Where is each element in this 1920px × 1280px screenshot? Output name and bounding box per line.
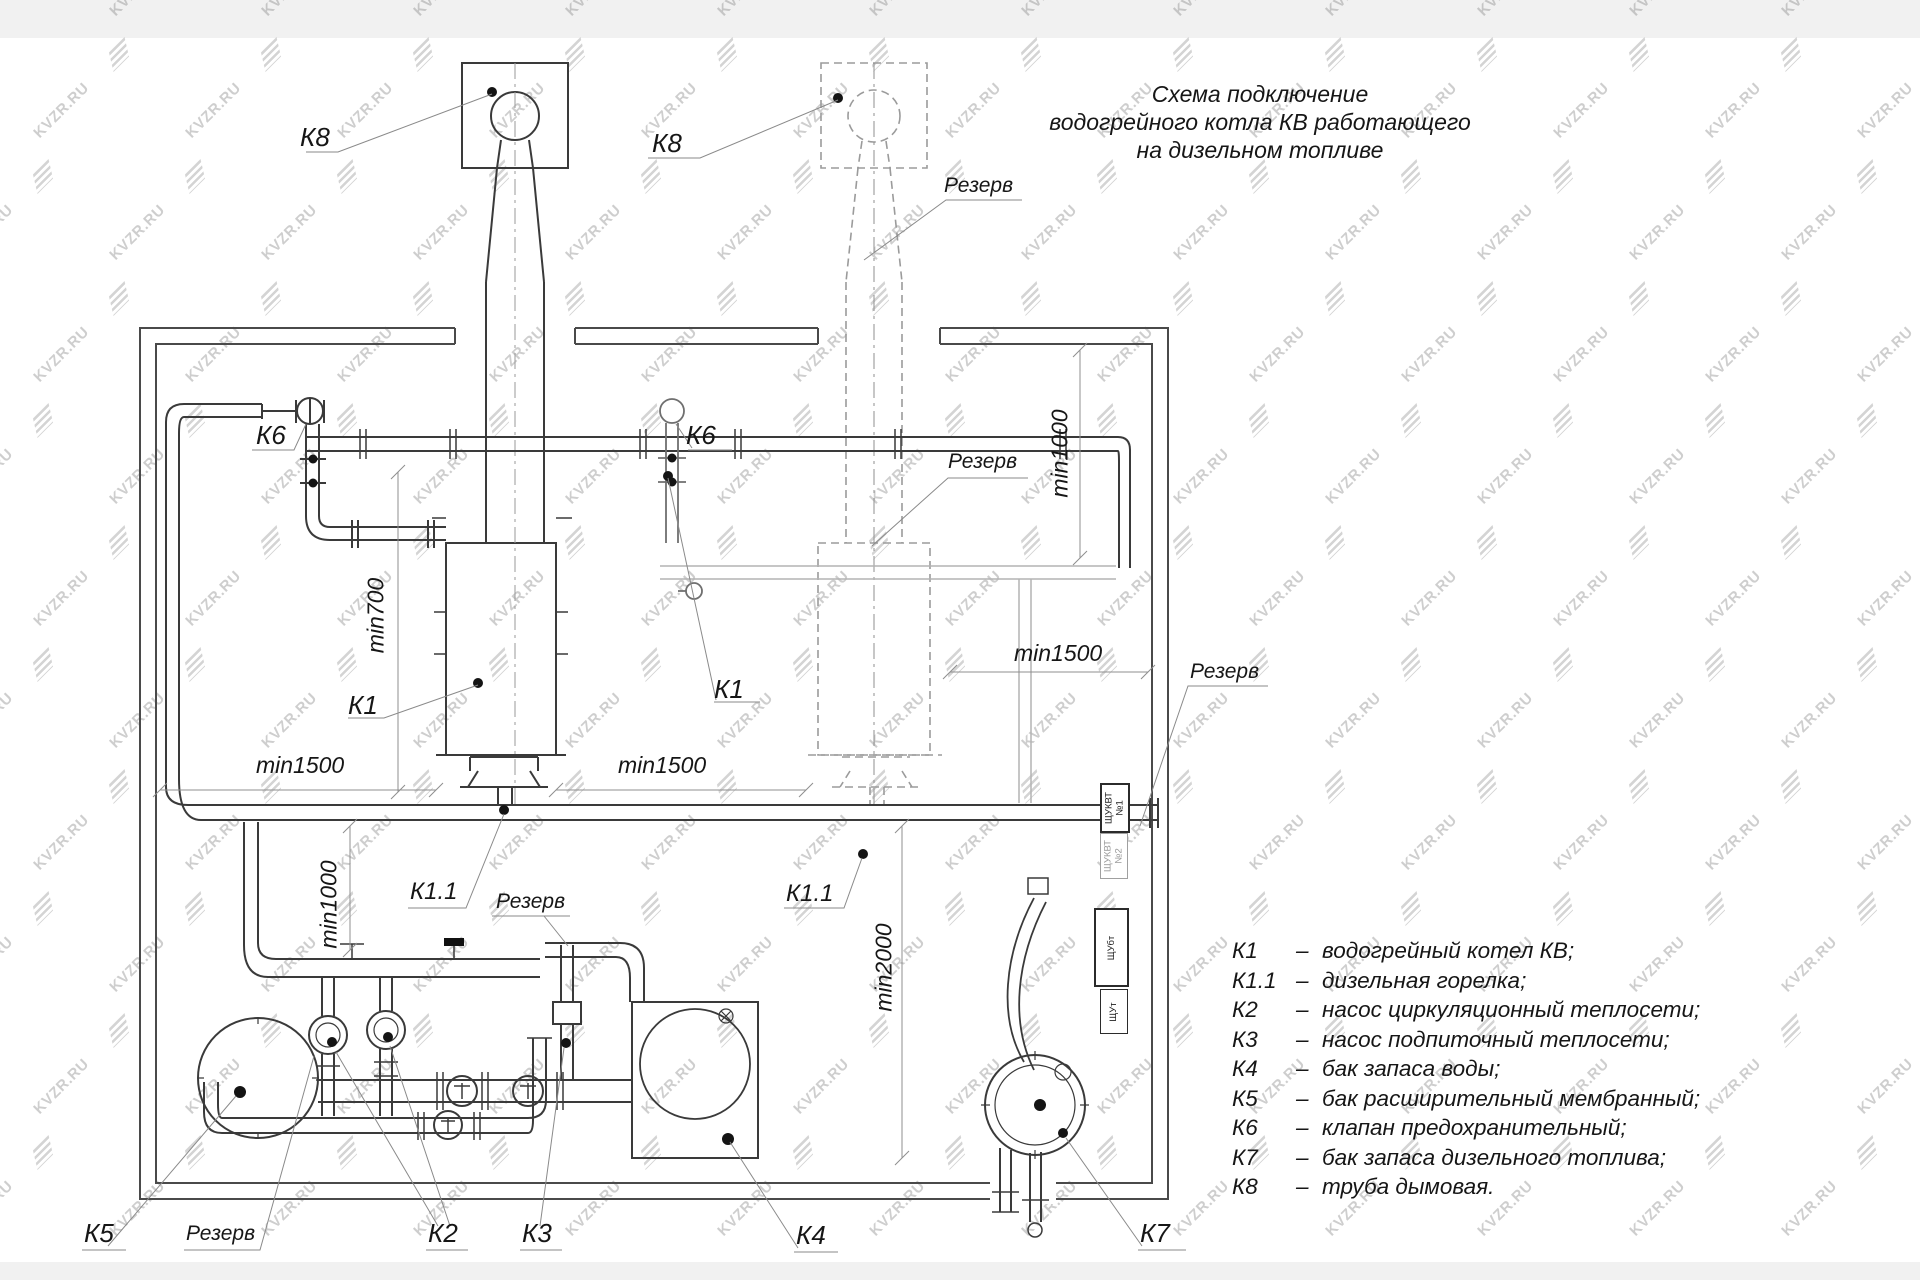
panel-shchut: ЩУт: [1100, 989, 1128, 1034]
dim-min1000-top: min1000: [1047, 394, 1074, 514]
legend-dash: –: [1296, 938, 1322, 964]
legend-dash: –: [1296, 1086, 1322, 1112]
label-k8-left: К8: [300, 122, 330, 153]
legend-row: К1–водогрейный котел КВ;: [1232, 938, 1700, 968]
legend-desc: бак запаса дизельного топлива;: [1322, 1145, 1666, 1171]
legend-code: К6: [1232, 1115, 1296, 1141]
legend-desc: труба дымовая.: [1322, 1174, 1494, 1200]
panel-shchukvt-1: ЩУКВТ №1: [1100, 783, 1130, 833]
title-line-1: Схема подключение: [1040, 80, 1480, 108]
legend-dash: –: [1296, 1056, 1322, 1082]
label-rezerv-chimney: Резерв: [944, 174, 1013, 198]
legend-code: К7: [1232, 1145, 1296, 1171]
legend-desc: водогрейный котел КВ;: [1322, 938, 1574, 964]
legend-desc: насос подпиточный теплосети;: [1322, 1027, 1670, 1053]
panel-shchubt-name: ЩУбт: [1105, 935, 1116, 960]
lower-pipe-network: [204, 943, 644, 1140]
legend-code: К8: [1232, 1174, 1296, 1200]
leader-lines: [82, 94, 1268, 1252]
label-rezerv-burner: Резерв: [496, 890, 565, 914]
label-k2: К2: [428, 1218, 458, 1249]
legend: К1–водогрейный котел КВ;К1.1–дизельная г…: [1232, 938, 1700, 1204]
panel-shchukvt-2: ЩУКВТ №2: [1100, 833, 1128, 879]
label-k8-right: К8: [652, 128, 682, 159]
title-line-3: на дизельном топливе: [1040, 136, 1480, 164]
legend-code: К2: [1232, 997, 1296, 1023]
label-k7: К7: [1140, 1218, 1170, 1249]
label-k6-right: К6: [686, 420, 716, 451]
panel-shchubt: ЩУбт: [1094, 908, 1129, 987]
dim-min1000-bottom: min1000: [316, 845, 343, 965]
label-rezerv-right: Резерв: [1190, 660, 1259, 684]
panel-shchut-name: ЩУт: [1108, 1002, 1119, 1021]
dim-min2000: min2000: [871, 908, 898, 1028]
legend-desc: бак расширительный мембранный;: [1322, 1086, 1700, 1112]
legend-dash: –: [1296, 1174, 1322, 1200]
legend-row: К6–клапан предохранительный;: [1232, 1115, 1700, 1145]
label-k4: К4: [796, 1220, 826, 1251]
dim-min1500-right: min1500: [1014, 640, 1134, 667]
legend-code: К1.1: [1232, 968, 1296, 994]
legend-code: К4: [1232, 1056, 1296, 1082]
legend-row: К1.1–дизельная горелка;: [1232, 968, 1700, 998]
dim-min1500-left: min1500: [256, 752, 376, 779]
label-k3: К3: [522, 1218, 552, 1249]
legend-dash: –: [1296, 1027, 1322, 1053]
valve-handle: [444, 938, 464, 946]
legend-desc: дизельная горелка;: [1322, 968, 1526, 994]
dim-min700: min700: [363, 556, 390, 676]
main-supply-pipe: [244, 798, 1158, 977]
legend-code: К5: [1232, 1086, 1296, 1112]
label-k11-left: К1.1: [410, 878, 458, 906]
dim-min1500-center: min1500: [618, 752, 738, 779]
legend-dash: –: [1296, 1115, 1322, 1141]
legend-row: К5–бак расширительный мембранный;: [1232, 1086, 1700, 1116]
leader-anchor-dots: [234, 87, 1068, 1145]
legend-row: К7–бак запаса дизельного топлива;: [1232, 1145, 1700, 1175]
legend-desc: клапан предохранительный;: [1322, 1115, 1627, 1141]
legend-row: К8–труба дымовая.: [1232, 1174, 1700, 1204]
legend-desc: бак запаса воды;: [1322, 1056, 1500, 1082]
reserve-boiler-drawing: [808, 63, 942, 805]
legend-row: К3–насос подпиточный теплосети;: [1232, 1027, 1700, 1057]
legend-dash: –: [1296, 968, 1322, 994]
panel-shchukvt-2-name: ЩУКВТ: [1103, 840, 1114, 872]
legend-row: К2–насос циркуляционный теплосети;: [1232, 997, 1700, 1027]
legend-dash: –: [1296, 997, 1322, 1023]
legend-code: К1: [1232, 938, 1296, 964]
legend-dash: –: [1296, 1145, 1322, 1171]
legend-desc: насос циркуляционный теплосети;: [1322, 997, 1700, 1023]
panel-shchukvt-2-num: №2: [1113, 848, 1124, 863]
drawing-title: Схема подключение водогрейного котла КВ …: [1040, 80, 1480, 164]
title-line-2: водогрейного котла КВ работающего: [1040, 108, 1480, 136]
label-k5: К5: [84, 1218, 114, 1249]
label-rezerv-boiler-top: Резерв: [948, 450, 1017, 474]
label-k1-right: К1: [714, 674, 744, 705]
safety-valve-k6-left: [262, 398, 446, 548]
panel-shchukvt-1-name: ЩУКВТ: [1104, 792, 1115, 824]
legend-code: К3: [1232, 1027, 1296, 1053]
label-k11-right: К1.1: [786, 880, 834, 908]
label-rezerv-pump: Резерв: [186, 1222, 255, 1246]
tank-k4-drawing: [632, 1002, 758, 1158]
label-k6-left: К6: [256, 420, 286, 451]
label-k1-left: К1: [348, 690, 378, 721]
legend-row: К4–бак запаса воды;: [1232, 1056, 1700, 1086]
drawing-sheet: KVZR.RUKVZR.RUKVZR.RUKVZR.RUKVZR.RUKVZR.…: [0, 0, 1920, 1280]
panel-shchukvt-1-num: №1: [1114, 800, 1125, 815]
